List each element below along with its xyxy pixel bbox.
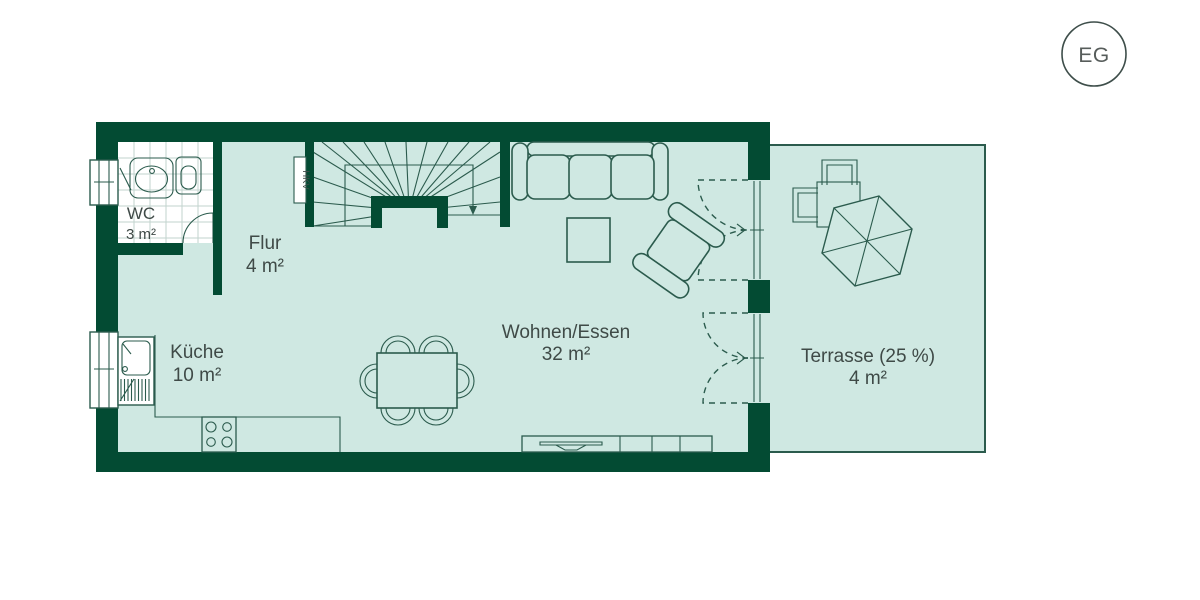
wall-top — [96, 122, 770, 142]
room-label-wohnen: Wohnen/Essen — [502, 322, 631, 343]
room-label-terrasse: Terrasse (25 %) — [801, 346, 935, 367]
room-area-flur: 4 m² — [246, 256, 284, 277]
wall-stair-right — [500, 142, 510, 227]
floor-level-badge: EG — [1062, 22, 1126, 86]
terrace-floor — [762, 145, 985, 452]
room-label-kueche: Küche — [170, 342, 224, 363]
terrace-area — [762, 145, 985, 452]
window-icon — [90, 160, 118, 205]
stair-newel-leg-left — [371, 196, 382, 228]
wall-bottom — [96, 452, 770, 472]
room-area-wc: 3 m² — [126, 226, 156, 243]
window-icon — [90, 332, 118, 408]
room-area-terrasse: 4 m² — [849, 368, 887, 389]
room-area-wohnen: 32 m² — [542, 344, 591, 365]
room-label-wc: WC — [127, 204, 155, 223]
wall-wc-bottom — [118, 243, 183, 255]
badge-label: EG — [1078, 44, 1109, 67]
stair-newel-wall — [371, 196, 448, 208]
stair-newel-leg-right — [437, 196, 448, 228]
wall-right — [748, 122, 770, 472]
sideboard-tv-icon — [522, 436, 712, 452]
coffee-table-icon — [567, 218, 610, 262]
dining-table-icon — [377, 353, 457, 408]
stair-void — [379, 206, 440, 229]
room-label-flur: Flur — [249, 233, 282, 254]
room-area-kueche: 10 m² — [173, 365, 222, 386]
wall-wc-flur — [213, 142, 222, 295]
floor-plan-page: HKV — [0, 0, 1200, 600]
sofa-icon — [512, 142, 668, 200]
floor-plan-drawing: HKV — [0, 0, 1200, 600]
hkv-label: HKV — [300, 170, 311, 190]
cooktop-icon — [202, 417, 236, 452]
kitchen-sink-icon — [118, 337, 154, 405]
